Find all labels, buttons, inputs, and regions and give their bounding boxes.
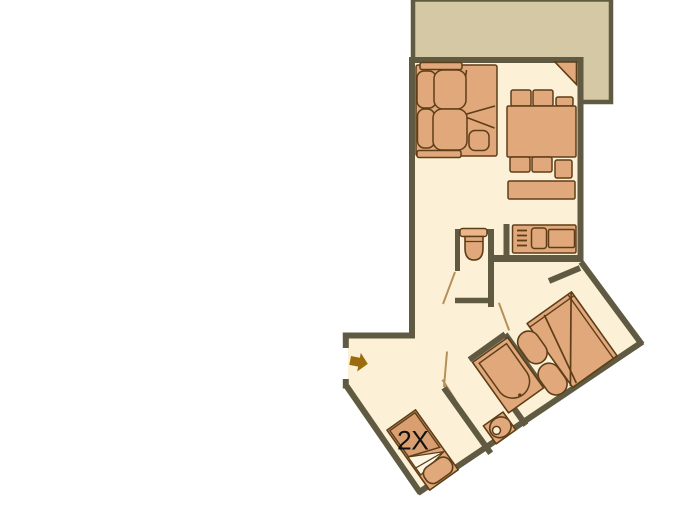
- svg-text:2X: 2X: [397, 426, 429, 456]
